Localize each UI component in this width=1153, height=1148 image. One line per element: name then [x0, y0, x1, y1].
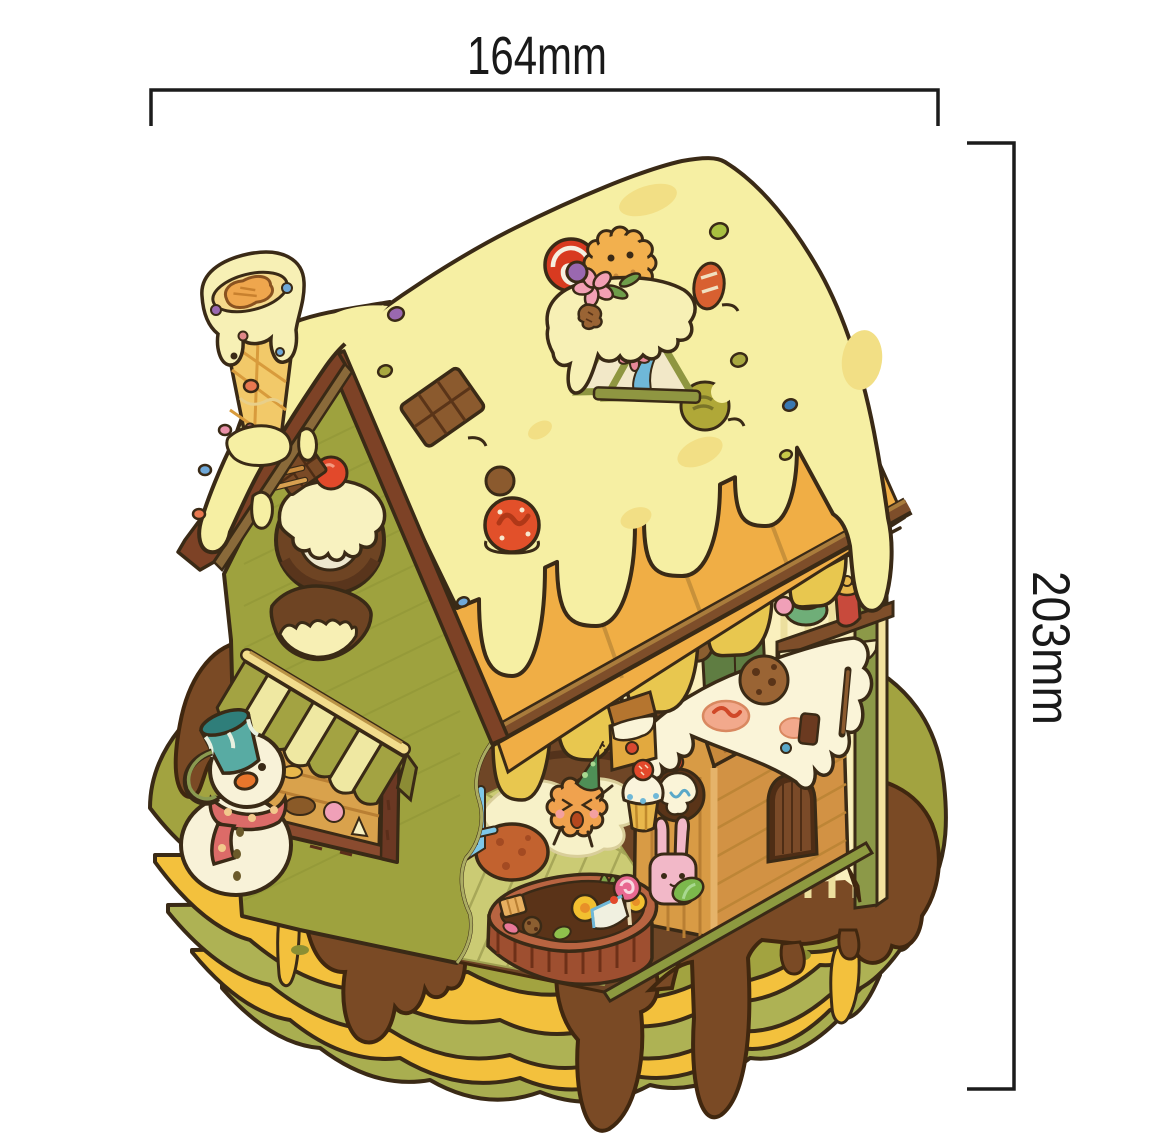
svg-text:164mm: 164mm [467, 26, 607, 86]
svg-text:203mm: 203mm [1021, 571, 1080, 725]
